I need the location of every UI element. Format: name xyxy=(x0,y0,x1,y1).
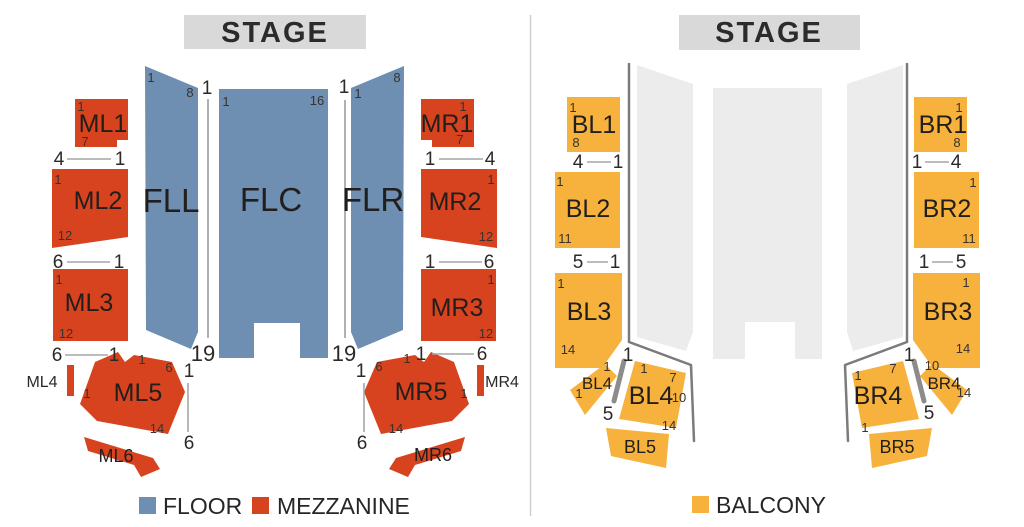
seat-row-number: 1 xyxy=(861,420,868,435)
seat-row-number: 1 xyxy=(114,252,125,273)
seat-row-number: 1 xyxy=(147,70,154,85)
balcony-panel: STAGE BL1 BL2 BL3 BL4 BL4 xyxy=(555,15,980,518)
section-label-mr6: MR6 xyxy=(414,445,452,465)
section-label-flr: FLR xyxy=(342,181,404,218)
section-label-br4-small: BR4 xyxy=(927,374,960,393)
section-label-br3: BR3 xyxy=(924,298,973,326)
seat-row-number: 7 xyxy=(669,370,676,385)
seat-row-number: 1 xyxy=(356,361,367,382)
section-label-flc: FLC xyxy=(240,181,302,218)
ghost-floor-right xyxy=(847,65,903,351)
ghost-floor-left xyxy=(637,65,693,351)
legend-balcony: BALCONY xyxy=(692,492,826,518)
seat-row-number: 12 xyxy=(59,326,73,341)
seat-row-number: 8 xyxy=(393,70,400,85)
section-label-ml3: ML3 xyxy=(65,289,114,317)
seat-row-number: 14 xyxy=(957,385,971,400)
seat-row-number: 1 xyxy=(904,345,915,366)
seat-row-number: 12 xyxy=(479,326,493,341)
seat-row-number: 7 xyxy=(889,361,896,376)
seat-row-number: 1 xyxy=(575,386,582,401)
seat-row-number: 5 xyxy=(956,252,967,273)
divider-tick-bl4 xyxy=(614,361,624,401)
seat-row-number: 6 xyxy=(375,359,382,374)
legend-mezzanine-swatch xyxy=(252,497,269,514)
seat-row-number: 1 xyxy=(354,86,361,101)
seat-map-canvas: STAGE FLL FLC FLR ML1 ML2 xyxy=(0,0,1024,527)
seat-row-number: 1 xyxy=(425,149,436,170)
seat-row-number: 16 xyxy=(310,93,324,108)
seat-row-number: 8 xyxy=(572,135,579,150)
seat-row-number: 1 xyxy=(202,78,213,99)
section-label-bl4-small: BL4 xyxy=(582,374,612,393)
seat-row-number: 1 xyxy=(623,345,634,366)
seat-row-number: 4 xyxy=(485,149,496,170)
section-ml4[interactable] xyxy=(67,365,74,396)
section-label-bl5: BL5 xyxy=(624,437,656,457)
seat-row-number: 1 xyxy=(569,100,576,115)
seat-row-number: 6 xyxy=(184,433,195,454)
seat-row-number: 1 xyxy=(222,94,229,109)
seat-row-number: 1 xyxy=(912,152,923,173)
seat-row-number: 11 xyxy=(962,231,976,246)
seat-row-number: 8 xyxy=(953,135,960,150)
section-label-br4: BR4 xyxy=(854,382,903,410)
seat-row-number: 5 xyxy=(573,252,584,273)
seat-row-number: 1 xyxy=(54,172,61,187)
seat-row-number: 12 xyxy=(479,229,493,244)
seat-row-number: 6 xyxy=(357,433,368,454)
seat-row-number: 1 xyxy=(603,359,610,374)
section-label-bl4: BL4 xyxy=(629,382,674,410)
seat-row-number: 19 xyxy=(191,341,215,366)
section-label-ml6: ML6 xyxy=(98,446,133,466)
seat-row-number: 1 xyxy=(425,252,436,273)
seat-row-number: 1 xyxy=(138,352,145,367)
legend-balcony-label: BALCONY xyxy=(716,492,826,518)
seat-row-number: 1 xyxy=(416,344,427,365)
seat-row-number: 1 xyxy=(487,172,494,187)
section-mr4[interactable] xyxy=(477,365,484,396)
seat-row-number: 4 xyxy=(54,149,65,170)
seat-row-number: 1 xyxy=(77,99,84,114)
seat-row-number: 1 xyxy=(640,361,647,376)
section-label-br5: BR5 xyxy=(879,437,914,457)
seat-row-number: 14 xyxy=(662,418,676,433)
seat-row-number: 1 xyxy=(610,252,621,273)
legend-floor-swatch xyxy=(139,497,156,514)
stage-right-label: STAGE xyxy=(715,17,823,49)
legend-floor-label: FLOOR xyxy=(163,493,242,519)
seat-row-number: 1 xyxy=(962,275,969,290)
seat-row-number: 10 xyxy=(925,358,939,373)
seat-row-number: 11 xyxy=(558,231,572,246)
legend-mezzanine-label: MEZZANINE xyxy=(277,493,410,519)
section-flc[interactable] xyxy=(219,89,328,358)
section-label-ml4: ML4 xyxy=(26,374,57,391)
seat-row-number: 1 xyxy=(854,368,861,383)
seat-row-number: 1 xyxy=(955,100,962,115)
seat-row-number: 1 xyxy=(339,77,350,98)
seat-row-number: 6 xyxy=(52,345,63,366)
divider-tick-br4 xyxy=(914,361,924,401)
seat-row-number: 1 xyxy=(83,386,90,401)
seat-row-number: 6 xyxy=(165,360,172,375)
seat-row-number: 5 xyxy=(603,404,614,425)
seat-row-number: 1 xyxy=(919,252,930,273)
seat-row-number: 1 xyxy=(613,152,624,173)
seat-row-number: 1 xyxy=(109,345,120,366)
seat-row-number: 1 xyxy=(55,272,62,287)
section-label-mr1: MR1 xyxy=(421,110,474,138)
seat-row-number: 1 xyxy=(557,276,564,291)
section-label-mr5: MR5 xyxy=(395,378,448,406)
seat-row-number: 5 xyxy=(924,403,935,424)
seat-row-number: 1 xyxy=(487,272,494,287)
seat-row-number: 1 xyxy=(115,149,126,170)
seat-row-number: 14 xyxy=(389,421,403,436)
section-label-bl3: BL3 xyxy=(567,298,611,326)
ghost-floor-center xyxy=(713,88,822,359)
section-label-br2: BR2 xyxy=(923,195,972,223)
seat-row-number: 1 xyxy=(459,99,466,114)
section-label-ml5: ML5 xyxy=(114,379,163,407)
seat-row-number: 6 xyxy=(53,252,64,273)
floor-mezzanine-panel: STAGE FLL FLC FLR ML1 ML2 xyxy=(26,15,519,519)
seat-row-number: 1 xyxy=(460,386,467,401)
seat-row-number: 1 xyxy=(969,175,976,190)
seat-row-number: 10 xyxy=(672,390,686,405)
seat-row-number: 6 xyxy=(477,344,488,365)
seat-row-number: 1 xyxy=(556,174,563,189)
seat-row-number: 4 xyxy=(951,152,962,173)
seat-row-number: 12 xyxy=(58,228,72,243)
seat-row-number: 14 xyxy=(561,342,575,357)
section-label-fll: FLL xyxy=(143,182,200,219)
seat-row-number: 8 xyxy=(186,85,193,100)
section-label-ml2: ML2 xyxy=(74,187,123,215)
seat-row-number: 14 xyxy=(150,421,164,436)
seat-row-number: 1 xyxy=(184,361,195,382)
legend-balcony-swatch xyxy=(692,496,709,513)
seat-row-number: 7 xyxy=(456,132,463,147)
seat-row-number: 19 xyxy=(332,341,356,366)
section-label-bl2: BL2 xyxy=(566,195,610,223)
seat-row-number: 6 xyxy=(484,252,495,273)
stage-left-label: STAGE xyxy=(221,17,329,49)
legend-floor-mezzanine: FLOOR MEZZANINE xyxy=(139,493,410,519)
seat-row-number: 7 xyxy=(81,134,88,149)
seat-row-number: 4 xyxy=(573,152,584,173)
seat-row-number: 14 xyxy=(956,341,970,356)
section-label-mr2: MR2 xyxy=(429,188,482,216)
section-label-mr4: MR4 xyxy=(485,374,519,391)
seat-row-number: 1 xyxy=(403,351,410,366)
section-label-mr3: MR3 xyxy=(431,294,484,322)
